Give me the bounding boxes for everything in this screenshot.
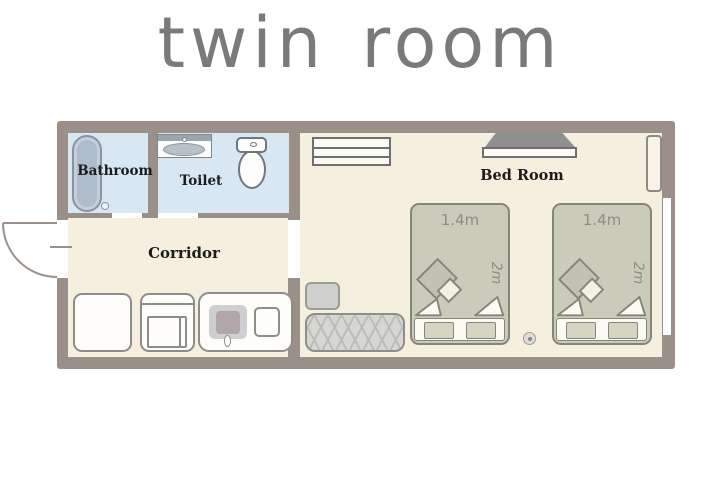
toilet-label: Toilet bbox=[180, 173, 223, 189]
dresser-drawer-line bbox=[314, 147, 389, 149]
toilet-tank-icon bbox=[236, 137, 267, 153]
entry-door-swing-icon bbox=[0, 214, 62, 284]
bed-1-pillow bbox=[466, 322, 496, 339]
bedroom-window bbox=[663, 198, 671, 335]
cabinet-door-hinge bbox=[179, 318, 181, 346]
sink-icon bbox=[157, 134, 212, 158]
bedroom-label: Bed Room bbox=[480, 167, 563, 184]
floor-plan: Bathroom Toilet Corridor bbox=[57, 121, 675, 369]
hob-plate bbox=[216, 311, 240, 334]
luggage-bench-icon bbox=[305, 313, 405, 352]
entry-door-leaf bbox=[50, 246, 72, 248]
bed-2-pillow bbox=[566, 322, 596, 339]
toilet-bowl-icon bbox=[238, 150, 266, 189]
corridor-label: Corridor bbox=[148, 244, 220, 262]
sink-basin bbox=[163, 143, 205, 156]
sink-faucet-icon bbox=[182, 137, 187, 142]
tv-icon bbox=[485, 133, 575, 147]
wardrobe-icon bbox=[646, 135, 662, 192]
bathtub-faucet-icon bbox=[101, 202, 109, 210]
floor-light-core bbox=[528, 337, 532, 341]
bedroom-door-opening bbox=[288, 220, 300, 278]
toilet-door-opening bbox=[158, 213, 198, 218]
cabinet-door bbox=[147, 316, 187, 348]
page-title: twin room bbox=[0, 2, 720, 84]
tv-shelf bbox=[482, 147, 577, 158]
twin-room-floor-plan-page: twin room Bathroom Toilet bbox=[0, 0, 720, 480]
dresser-drawer-line bbox=[314, 156, 389, 158]
bed-1-length-dimension: 2m bbox=[488, 262, 504, 285]
floor-light-icon bbox=[523, 332, 536, 345]
bathroom-door-opening bbox=[112, 213, 142, 218]
bathroom-label: Bathroom bbox=[77, 163, 153, 179]
toilet-flush-button-icon bbox=[250, 142, 257, 147]
cabinet-counter-edge bbox=[142, 303, 193, 305]
bed-1: 1.4m 2m bbox=[410, 203, 510, 345]
kitchenette-unit bbox=[198, 292, 293, 352]
bed-2: 1.4m 2m bbox=[552, 203, 652, 345]
stool-icon bbox=[305, 282, 340, 310]
hob-icon bbox=[209, 305, 247, 339]
bed-2-length-dimension: 2m bbox=[630, 262, 646, 285]
cabinet-unit bbox=[140, 293, 195, 352]
counter-unit bbox=[73, 293, 132, 352]
hob-knob-icon bbox=[224, 335, 231, 347]
bed-2-pillow bbox=[608, 322, 638, 339]
bed-1-pillow bbox=[424, 322, 454, 339]
bed-2-width-dimension: 1.4m bbox=[583, 211, 621, 229]
bed-1-width-dimension: 1.4m bbox=[441, 211, 479, 229]
dresser-icon bbox=[312, 137, 391, 166]
kitchen-sink-icon bbox=[254, 307, 280, 337]
